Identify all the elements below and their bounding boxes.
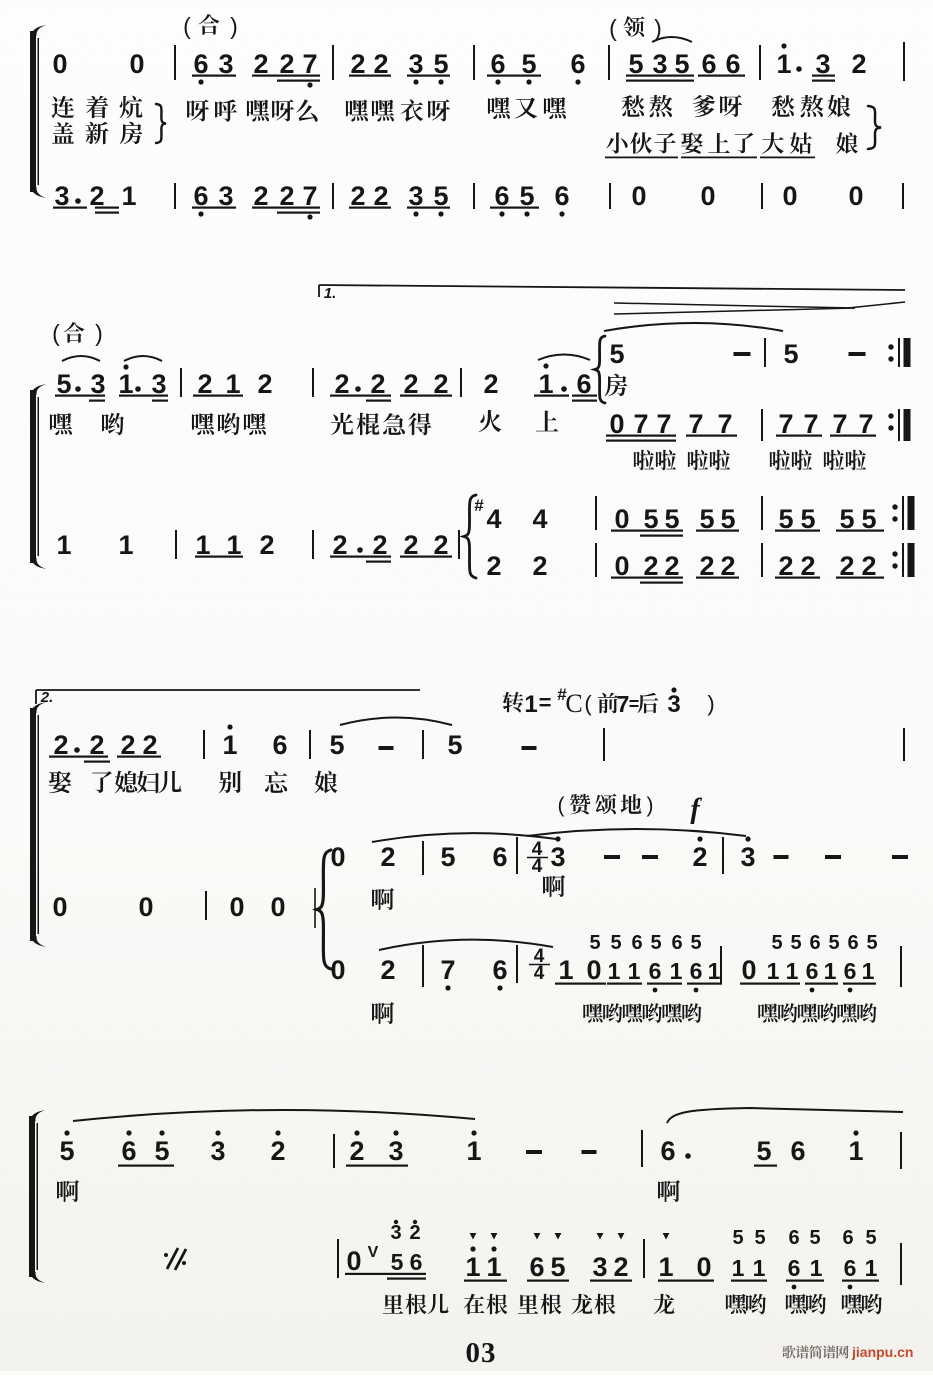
svg-text:1: 1 (786, 958, 799, 984)
svg-text:6: 6 (809, 932, 820, 954)
svg-text:6: 6 (842, 1227, 853, 1249)
svg-text:1: 1 (118, 530, 133, 560)
svg-text:5: 5 (329, 730, 344, 760)
svg-text:0: 0 (782, 181, 797, 211)
svg-text:6: 6 (649, 958, 662, 984)
svg-text:5: 5 (447, 730, 462, 760)
svg-text:6: 6 (806, 958, 819, 984)
svg-text:(: ( (183, 13, 191, 39)
svg-text:5: 5 (59, 1136, 74, 1166)
svg-text:0: 0 (741, 955, 756, 985)
svg-text:1: 1 (862, 958, 875, 984)
svg-text:3: 3 (388, 1136, 403, 1166)
svg-text:6: 6 (788, 1255, 801, 1281)
svg-text:6: 6 (272, 730, 287, 760)
svg-text:5: 5 (783, 339, 798, 369)
svg-text:03: 03 (466, 1337, 497, 1369)
svg-text:0: 0 (138, 892, 153, 922)
svg-text:1: 1 (810, 1255, 823, 1281)
svg-text:0: 0 (330, 842, 345, 872)
svg-text:1: 1 (222, 730, 237, 760)
svg-text:5: 5 (391, 1249, 404, 1275)
svg-text:=: = (629, 694, 640, 714)
svg-text:0: 0 (700, 181, 715, 211)
svg-text:5: 5 (609, 339, 624, 369)
svg-text:6: 6 (121, 1136, 136, 1166)
svg-text:3: 3 (210, 1136, 225, 1166)
svg-text:): ) (95, 320, 103, 346)
svg-text:(: ( (558, 794, 565, 817)
svg-text:1: 1 (753, 1255, 766, 1281)
svg-text:6: 6 (631, 932, 642, 954)
svg-text:0: 0 (270, 892, 285, 922)
svg-text:2: 2 (851, 49, 866, 79)
svg-text:V: V (368, 1244, 379, 1261)
svg-text:0: 0 (330, 955, 345, 985)
svg-text:5: 5 (610, 932, 621, 954)
svg-text:1: 1 (732, 1255, 745, 1281)
svg-text:2: 2 (613, 1252, 628, 1282)
svg-text:6: 6 (570, 49, 585, 79)
svg-text:1: 1 (558, 955, 573, 985)
svg-text:3: 3 (390, 1222, 401, 1244)
svg-text:2: 2 (380, 842, 395, 872)
svg-text:5: 5 (866, 932, 877, 954)
svg-text:5: 5 (809, 1227, 820, 1249)
svg-text:): ) (654, 15, 662, 41)
svg-text:1: 1 (486, 1252, 501, 1282)
svg-text:3: 3 (740, 842, 755, 872)
svg-text:C: C (565, 689, 582, 718)
svg-text:): ) (707, 691, 714, 716)
svg-text:2: 2 (349, 1136, 364, 1166)
svg-text:4: 4 (532, 504, 547, 534)
svg-text:4: 4 (532, 856, 543, 877)
svg-text:6: 6 (844, 958, 857, 984)
svg-text:7: 7 (440, 955, 455, 985)
svg-text:1: 1 (465, 1252, 480, 1282)
svg-text:0: 0 (346, 1246, 361, 1276)
svg-text:6: 6 (671, 932, 682, 954)
svg-text:4: 4 (486, 504, 501, 534)
svg-text:): ) (230, 13, 238, 39)
svg-text:5: 5 (771, 932, 782, 954)
svg-text:1: 1 (658, 1252, 673, 1282)
svg-text:5: 5 (754, 1227, 765, 1249)
svg-text:5: 5 (756, 1136, 771, 1166)
svg-text:6: 6 (788, 1227, 799, 1249)
svg-text:0: 0 (848, 181, 863, 211)
svg-text:0: 0 (631, 181, 646, 211)
svg-text:6: 6 (660, 1136, 675, 1166)
svg-text:5: 5 (440, 842, 455, 872)
svg-text:1: 1 (670, 958, 683, 984)
svg-text:6: 6 (844, 1255, 857, 1281)
svg-text:1: 1 (524, 691, 537, 718)
svg-text:5: 5 (650, 932, 661, 954)
svg-text:6: 6 (492, 955, 507, 985)
svg-text:2: 2 (257, 369, 272, 399)
svg-text:(: ( (609, 15, 617, 41)
svg-text:0: 0 (586, 955, 601, 985)
svg-text:2: 2 (692, 842, 707, 872)
svg-text:(: ( (584, 691, 592, 716)
svg-text:1: 1 (767, 958, 780, 984)
svg-text:4: 4 (534, 963, 545, 984)
svg-text:2: 2 (270, 1136, 285, 1166)
svg-text:6: 6 (690, 958, 703, 984)
svg-text:5: 5 (154, 1136, 169, 1166)
svg-text:5: 5 (589, 932, 600, 954)
svg-text:1: 1 (628, 958, 641, 984)
svg-text:#: # (474, 496, 484, 515)
svg-text:5: 5 (865, 1227, 876, 1249)
svg-text:(: ( (52, 320, 60, 346)
svg-text:2: 2 (483, 369, 498, 399)
svg-text:6: 6 (847, 932, 858, 954)
svg-text:3: 3 (667, 691, 680, 718)
svg-text:6: 6 (410, 1249, 423, 1275)
svg-text:0: 0 (696, 1252, 711, 1282)
svg-text:5: 5 (550, 1252, 565, 1282)
svg-text:1: 1 (848, 1136, 863, 1166)
svg-text:2: 2 (380, 955, 395, 985)
svg-text:6: 6 (529, 1252, 544, 1282)
svg-text:1: 1 (608, 958, 621, 984)
svg-text:=: = (539, 690, 552, 715)
svg-text:f: f (690, 794, 702, 825)
svg-text:1: 1 (708, 958, 721, 984)
svg-text:): ) (647, 794, 654, 817)
svg-text:6: 6 (790, 1136, 805, 1166)
svg-text:1.: 1. (324, 285, 337, 302)
svg-text:1: 1 (56, 530, 71, 560)
svg-text:5: 5 (790, 932, 801, 954)
svg-text:2: 2 (259, 530, 274, 560)
svg-text:5: 5 (690, 932, 701, 954)
svg-text:1: 1 (824, 958, 837, 984)
svg-text:1: 1 (776, 49, 791, 79)
svg-text:2: 2 (409, 1222, 420, 1244)
svg-text:jianpu.cn: jianpu.cn (851, 1344, 913, 1360)
svg-text:2: 2 (486, 551, 501, 581)
svg-text:1: 1 (121, 181, 136, 211)
svg-text:5: 5 (828, 932, 839, 954)
svg-text:3: 3 (550, 842, 565, 872)
svg-text:0: 0 (52, 49, 67, 79)
svg-text:6: 6 (492, 842, 507, 872)
svg-text:5: 5 (732, 1227, 743, 1249)
svg-text:3: 3 (592, 1252, 607, 1282)
svg-text:0: 0 (129, 49, 144, 79)
svg-text:2: 2 (532, 551, 547, 581)
svg-text:1: 1 (865, 1255, 878, 1281)
svg-text:7: 7 (617, 691, 630, 717)
svg-text:0: 0 (229, 892, 244, 922)
svg-text:0: 0 (52, 892, 67, 922)
svg-text:6: 6 (554, 181, 569, 211)
svg-text:1: 1 (466, 1136, 481, 1166)
